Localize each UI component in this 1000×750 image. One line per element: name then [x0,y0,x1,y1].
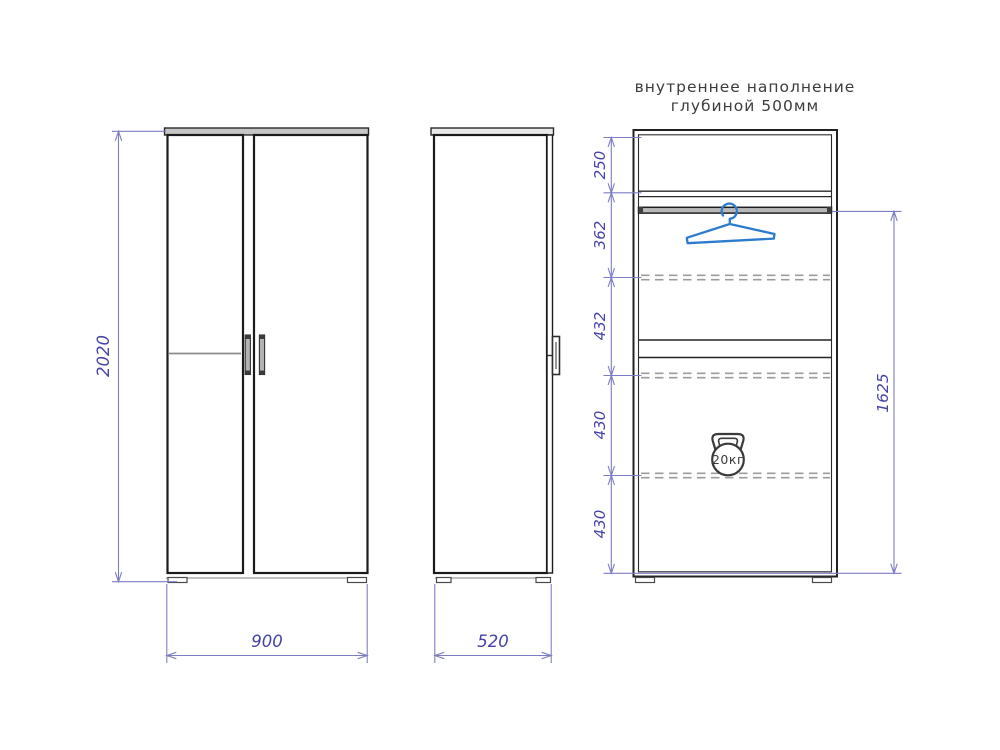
front-foot-right [348,578,367,583]
front-view [165,128,369,583]
internal-section-4-label: 430 [590,395,610,455]
hanging-zone-dim-label: 1625 [873,363,893,423]
internal-foot-right [813,578,832,583]
side-foot-right [536,578,551,583]
internal-view [634,130,838,583]
dim-side-depth [435,584,551,663]
internal-section-2-label: 362 [590,205,610,265]
drawing-title-line2: глубиной 500мм [612,97,878,116]
side-view [431,128,560,583]
door-handle-right [259,335,264,375]
front-height-dim-label: 2020 [93,326,113,386]
front-width-dim-label: 900 [237,631,297,651]
front-right-door [254,135,368,573]
drawing-title-line1: внутреннее наполнение [612,78,878,97]
internal-section-1-label: 250 [590,135,610,195]
side-foot-left [437,578,452,583]
internal-section-5-label: 430 [590,494,610,554]
side-body [434,135,547,573]
wardrobe-technical-drawing: внутреннее наполнение глубиной 500мм 202… [0,0,1000,750]
dim-front-width [167,584,367,663]
drawing-title: внутреннее наполнение глубиной 500мм [612,78,878,116]
internal-foot-left [636,578,655,583]
door-handle-left [245,335,250,375]
internal-section-3-label: 432 [590,296,610,356]
side-depth-dim-label: 520 [463,631,523,651]
side-door-slab [547,135,553,573]
shelf-load-label: 20кг [704,451,752,467]
